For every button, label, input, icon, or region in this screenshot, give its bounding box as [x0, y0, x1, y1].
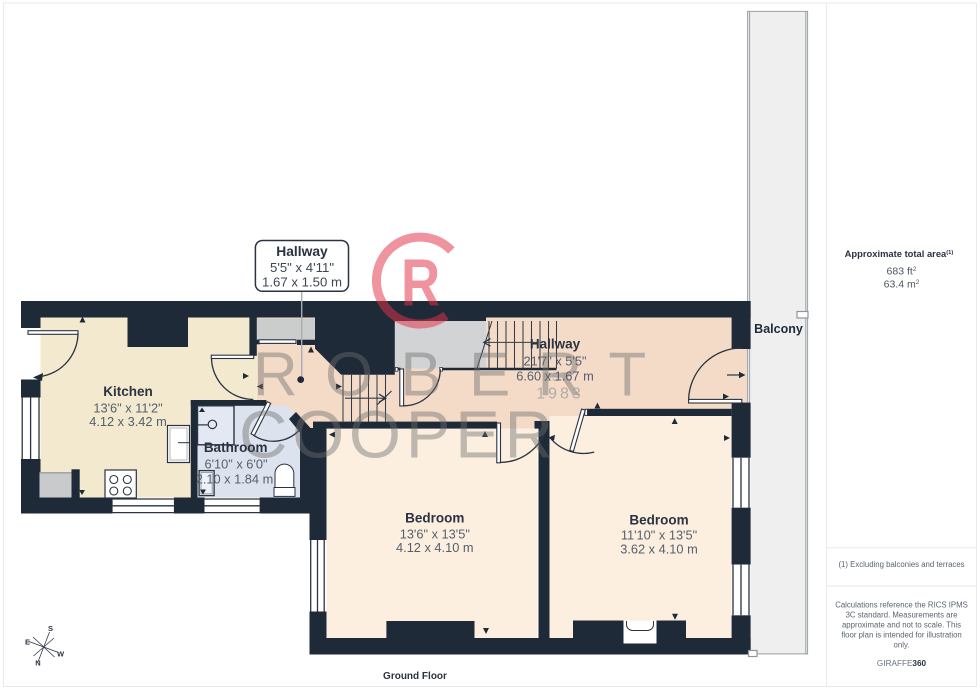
svg-text:Approximate total area(1): Approximate total area(1)	[845, 248, 954, 259]
svg-text:5'5" x 4'11": 5'5" x 4'11"	[270, 260, 334, 275]
svg-text:R: R	[401, 245, 440, 320]
svg-text:Ground Floor: Ground Floor	[383, 671, 447, 682]
svg-text:1.67 x 1.50 m: 1.67 x 1.50 m	[262, 275, 342, 290]
svg-text:Calculations reference the RIC: Calculations reference the RICS IPMS	[835, 601, 968, 610]
svg-text:3.62 x 4.10 m: 3.62 x 4.10 m	[620, 542, 698, 557]
svg-text:63.4 m2: 63.4 m2	[884, 279, 920, 291]
svg-text:W: W	[57, 650, 65, 659]
svg-text:only.: only.	[894, 641, 910, 650]
svg-text:GIRAFFE360: GIRAFFE360	[877, 659, 927, 668]
svg-text:683 ft2: 683 ft2	[887, 266, 917, 278]
svg-text:2.10 x 1.84 m: 2.10 x 1.84 m	[196, 472, 274, 487]
svg-text:3C standard. Measurements are: 3C standard. Measurements are	[846, 611, 958, 620]
svg-text:11'10" x 13'5": 11'10" x 13'5"	[621, 528, 697, 543]
svg-text:4.12 x 3.42 m: 4.12 x 3.42 m	[89, 414, 167, 429]
svg-text:N: N	[35, 659, 40, 668]
svg-text:floor plan is intended for ill: floor plan is intended for illustration	[841, 631, 962, 640]
svg-text:Bathroom: Bathroom	[204, 440, 268, 455]
svg-text:21'7" x 5'5": 21'7" x 5'5"	[523, 354, 586, 369]
svg-text:COOPER: COOPER	[239, 398, 558, 473]
svg-text:1983: 1983	[536, 386, 584, 403]
svg-text:approximate and not to scale.: approximate and not to scale. This	[842, 621, 961, 630]
svg-text:Balcony: Balcony	[754, 322, 803, 336]
svg-text:Bedroom: Bedroom	[629, 513, 688, 528]
svg-text:Kitchen: Kitchen	[103, 384, 153, 399]
svg-text:S: S	[48, 624, 53, 633]
svg-text:6'10" x 6'0": 6'10" x 6'0"	[204, 457, 267, 472]
svg-text:4.12 x 4.10 m: 4.12 x 4.10 m	[396, 540, 474, 555]
svg-text:E: E	[25, 638, 30, 647]
svg-text:(1) Excluding balconies and te: (1) Excluding balconies and terraces	[838, 560, 964, 569]
svg-text:Hallway: Hallway	[276, 244, 328, 259]
svg-text:6.60 x 1.67 m: 6.60 x 1.67 m	[516, 369, 594, 384]
svg-text:Bedroom: Bedroom	[405, 511, 464, 526]
svg-text:Hallway: Hallway	[530, 337, 581, 352]
